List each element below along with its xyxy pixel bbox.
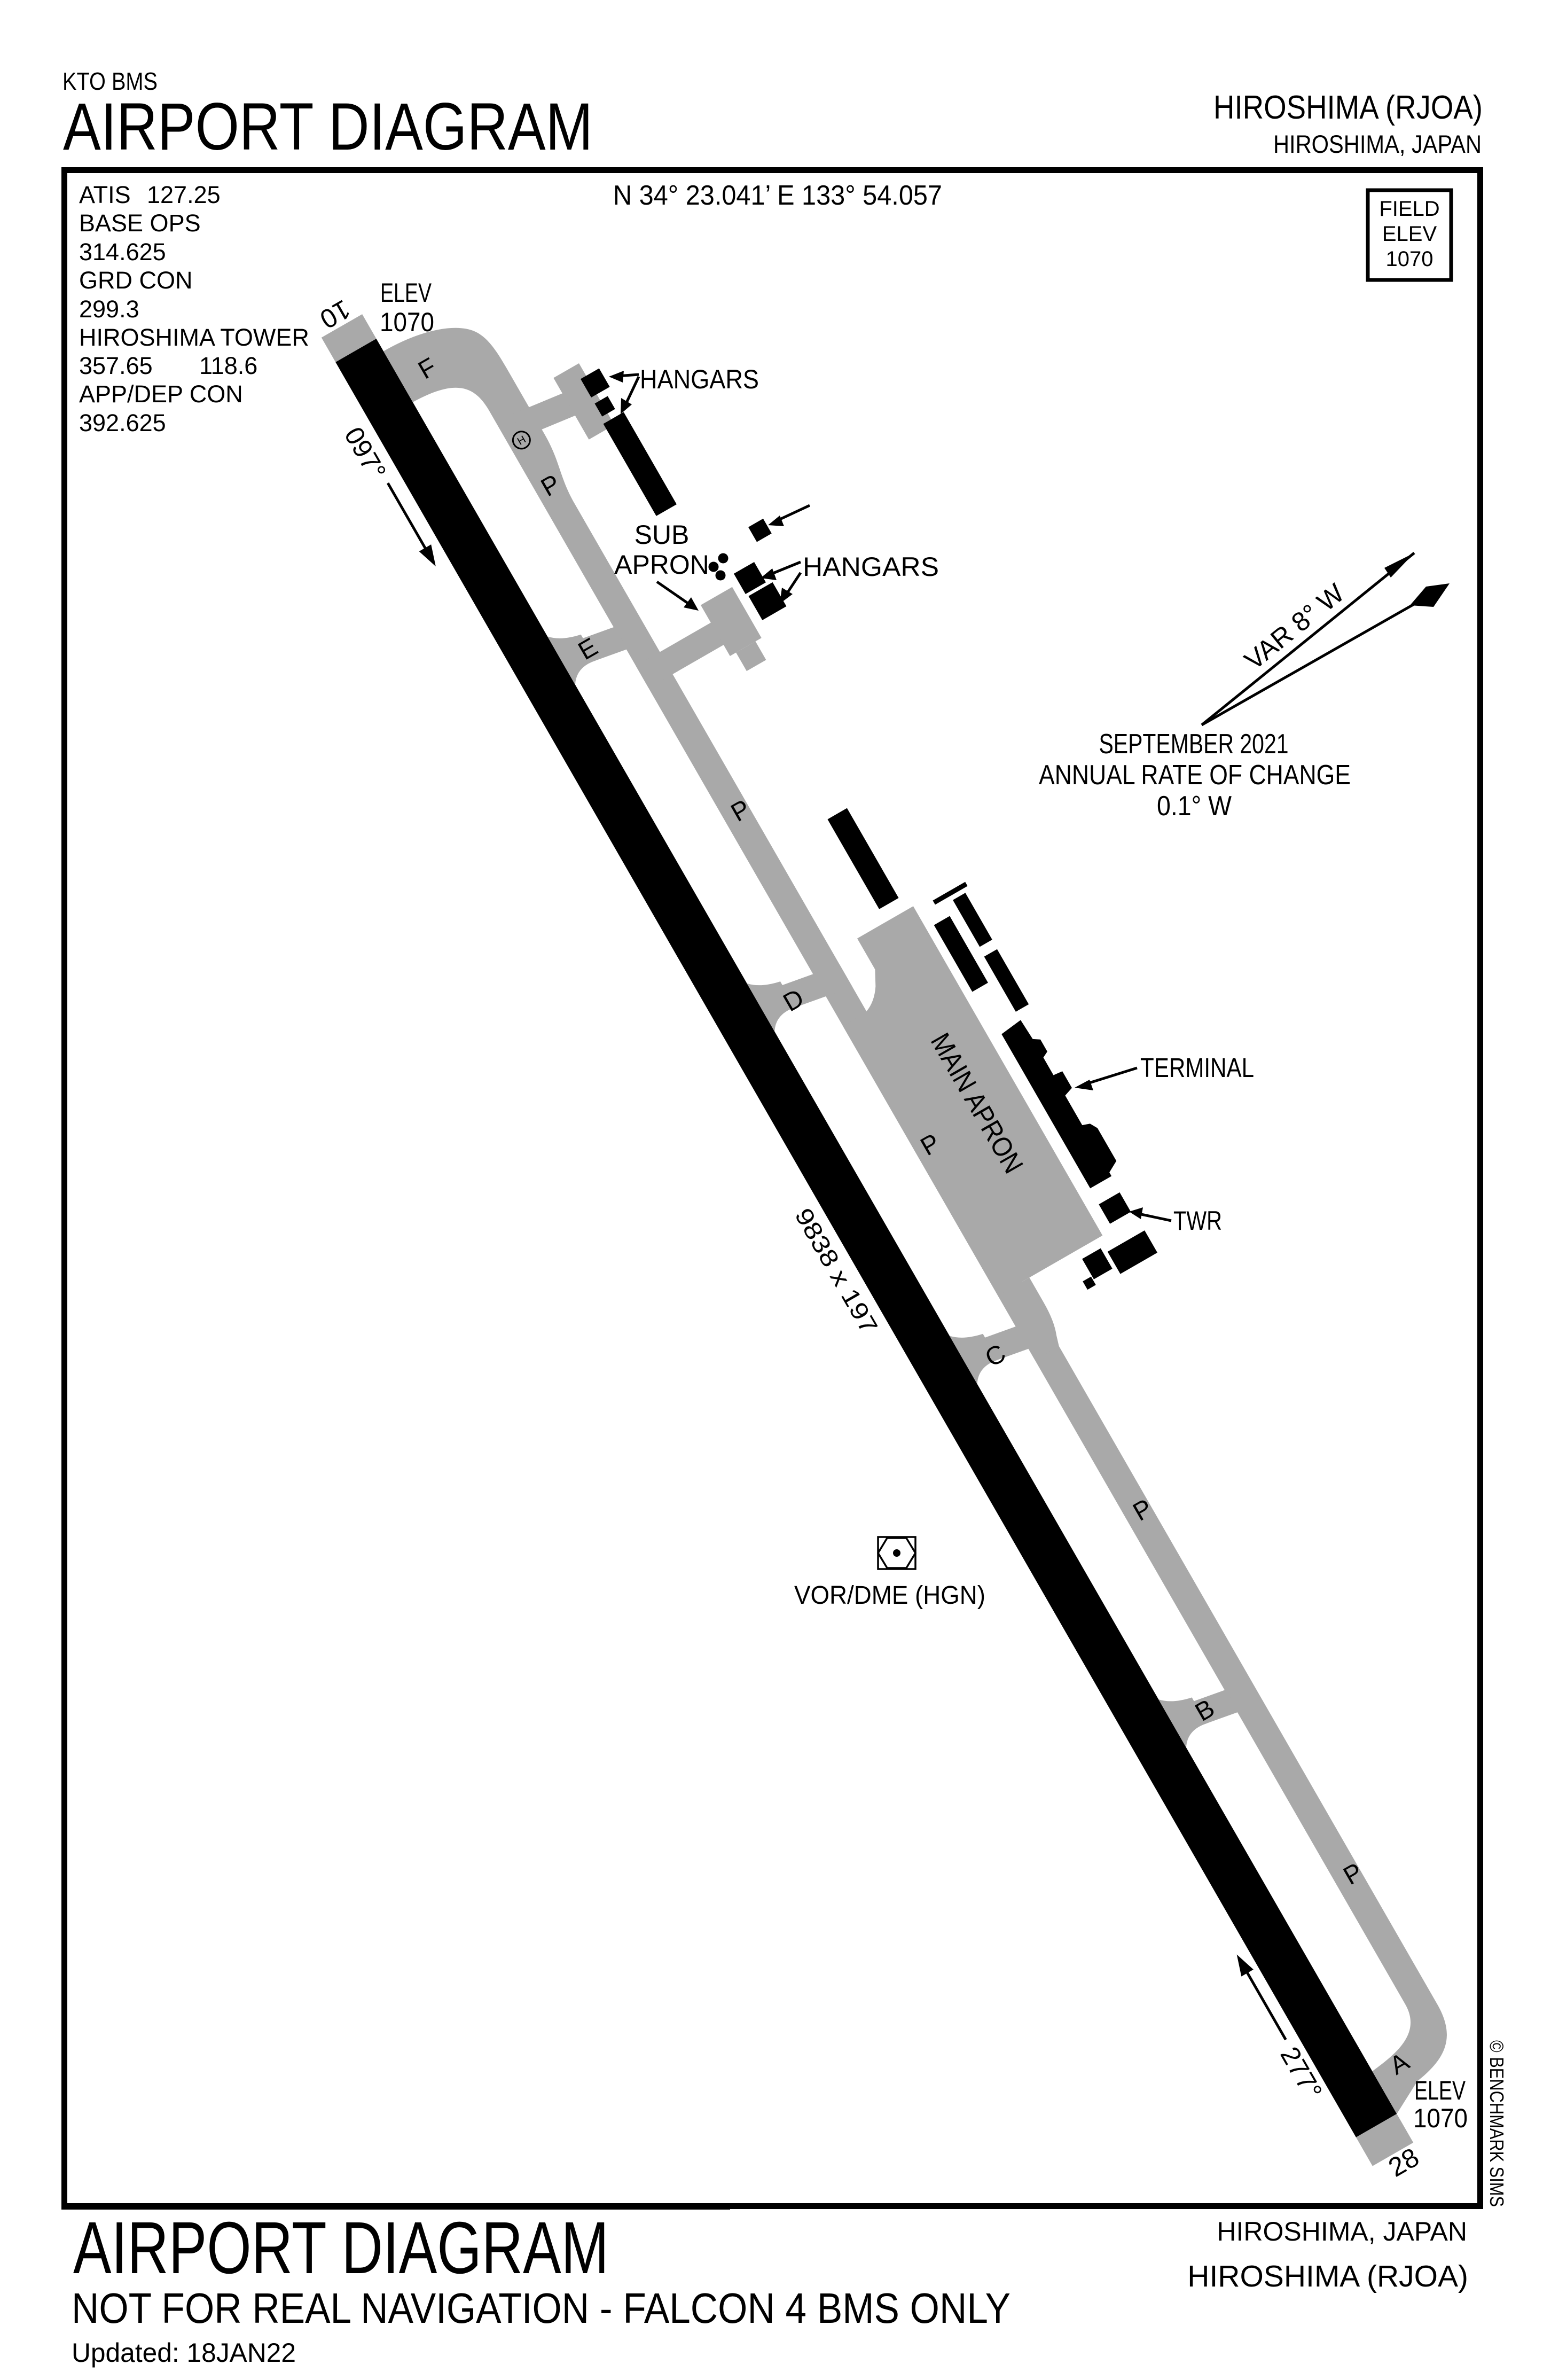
svg-text:HIROSHIMA (RJOA): HIROSHIMA (RJOA)	[1213, 89, 1483, 126]
svg-text:ELEV: ELEV	[1382, 222, 1437, 246]
svg-text:BASE OPS: BASE OPS	[79, 209, 201, 237]
svg-text:FIELD: FIELD	[1379, 197, 1439, 221]
svg-text:HIROSHIMA, JAPAN: HIROSHIMA, JAPAN	[1273, 130, 1482, 158]
svg-text:357.65: 357.65	[79, 352, 153, 379]
svg-text:AIRPORT DIAGRAM: AIRPORT DIAGRAM	[73, 2207, 609, 2289]
svg-text:127.25: 127.25	[147, 181, 221, 208]
svg-text:© BENCHMARK SIMS: © BENCHMARK SIMS	[1486, 2040, 1508, 2207]
svg-text:APP/DEP CON: APP/DEP CON	[79, 380, 243, 408]
svg-text:HANGARS: HANGARS	[640, 364, 759, 394]
svg-text:HANGARS: HANGARS	[803, 552, 939, 582]
svg-text:ELEV: ELEV	[380, 278, 432, 308]
svg-text:SUB: SUB	[634, 520, 690, 550]
svg-text:APRON: APRON	[614, 550, 709, 580]
svg-text:HIROSHIMA (RJOA): HIROSHIMA (RJOA)	[1187, 2259, 1468, 2293]
svg-text:HIROSHIMA, JAPAN: HIROSHIMA, JAPAN	[1217, 2217, 1467, 2246]
svg-text:Updated: 18JAN22: Updated: 18JAN22	[72, 2338, 296, 2368]
svg-text:N 34° 23.041’ E 133° 54.057: N 34° 23.041’ E 133° 54.057	[613, 180, 942, 211]
svg-text:AIRPORT DIAGRAM: AIRPORT DIAGRAM	[63, 90, 593, 164]
svg-text:1070: 1070	[380, 307, 434, 337]
svg-text:118.6: 118.6	[199, 352, 257, 379]
svg-text:0.1° W: 0.1° W	[1157, 791, 1232, 822]
svg-text:392.625: 392.625	[79, 409, 166, 436]
svg-text:1070: 1070	[1413, 2103, 1468, 2133]
svg-text:ATIS: ATIS	[79, 181, 131, 208]
svg-text:314.625: 314.625	[79, 238, 166, 266]
svg-text:NOT FOR REAL NAVIGATION - FALC: NOT FOR REAL NAVIGATION - FALCON 4 BMS O…	[72, 2284, 1010, 2332]
svg-text:ANNUAL RATE OF CHANGE: ANNUAL RATE OF CHANGE	[1039, 760, 1351, 791]
svg-text:SEPTEMBER 2021: SEPTEMBER 2021	[1099, 729, 1289, 760]
svg-text:ELEV: ELEV	[1414, 2075, 1466, 2105]
svg-text:299.3: 299.3	[79, 295, 139, 323]
svg-text:VOR/DME (HGN): VOR/DME (HGN)	[794, 1581, 985, 1610]
svg-text:HIROSHIMA TOWER: HIROSHIMA TOWER	[79, 324, 309, 351]
svg-text:GRD CON: GRD CON	[79, 267, 193, 294]
svg-text:TWR: TWR	[1173, 1206, 1222, 1236]
svg-text:TERMINAL: TERMINAL	[1140, 1052, 1254, 1083]
svg-text:1070: 1070	[1386, 247, 1433, 271]
